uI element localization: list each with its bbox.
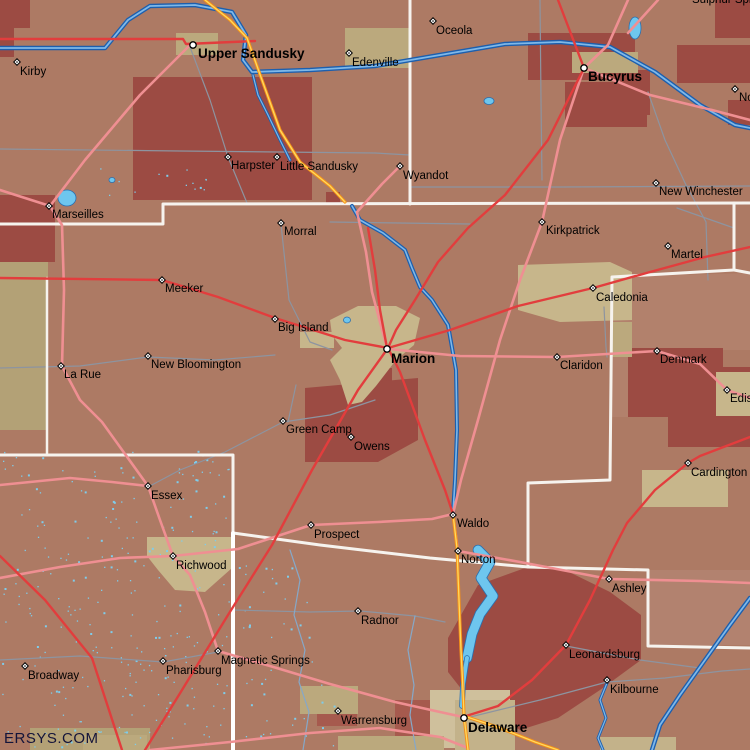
town-label-new-bloomington: New Bloomington — [151, 359, 241, 371]
region-tan-bottom-mid — [338, 736, 444, 750]
town-label-ashley: Ashley — [612, 583, 647, 595]
town-label-kirkpatrick: Kirkpatrick — [546, 225, 600, 237]
town-label-leonardsburg: Leonardsburg — [569, 649, 640, 661]
town-marker-dot-edison — [726, 389, 728, 391]
town-marker-dot-ashley — [608, 578, 610, 580]
town-label-denmark: Denmark — [660, 354, 707, 366]
town-label-richwood: Richwood — [176, 560, 227, 572]
town-marker-dot-radnor — [357, 610, 359, 612]
town-label-bucyrus: Bucyrus — [588, 69, 642, 84]
town-marker-dot-la-rue — [60, 365, 62, 367]
map-canvas[interactable]: KirbyUpper SanduskyEdenvilleOceolaBucyru… — [0, 0, 750, 750]
region-tan-left-strip — [0, 262, 48, 430]
town-label-warrensburg: Warrensburg — [341, 715, 407, 727]
city-marker-marion — [384, 346, 390, 352]
town-label-morral: Morral — [284, 226, 317, 238]
town-marker-dot-waldo — [452, 514, 454, 516]
town-label-kirby: Kirby — [20, 66, 46, 78]
town-marker-dot-kirkpatrick — [541, 221, 543, 223]
town-label-martel: Martel — [671, 249, 703, 261]
town-marker-dot-prospect — [310, 524, 312, 526]
town-label-owens: Owens — [354, 441, 390, 453]
town-label-essex: Essex — [151, 490, 183, 502]
lake-pond-2 — [344, 317, 351, 323]
town-marker-dot-denmark — [656, 350, 658, 352]
map: KirbyUpper SanduskyEdenvilleOceolaBucyru… — [0, 0, 750, 750]
town-marker-dot-oceola — [432, 20, 434, 22]
town-label-pharisburg: Pharisburg — [166, 665, 222, 677]
town-label-cardington: Cardington — [691, 467, 747, 479]
town-label-harpster: Harpster — [231, 160, 275, 172]
town-label-prospect: Prospect — [314, 529, 360, 541]
town-label-little-sandusky: Little Sandusky — [280, 161, 358, 173]
town-label-wyandot: Wyandot — [403, 170, 449, 182]
town-label-upper-sandusky: Upper Sandusky — [198, 46, 305, 61]
town-marker-dot-cardington — [687, 462, 689, 464]
town-label-magnetic-springs: Magnetic Springs — [221, 655, 310, 667]
town-marker-dot-green-camp — [282, 420, 284, 422]
town-marker-dot-big-island — [274, 318, 276, 320]
town-marker-dot-norton — [457, 550, 459, 552]
town-label-marion: Marion — [391, 351, 435, 366]
town-label-oceola: Oceola — [436, 25, 473, 37]
town-marker-dot-owens — [350, 436, 352, 438]
town-marker-dot-caledonia — [592, 287, 594, 289]
town-marker-dot-magnetic-springs — [217, 650, 219, 652]
town-marker-dot-warrensburg — [337, 710, 339, 712]
city-marker-delaware — [461, 715, 467, 721]
town-marker-dot-kirby — [16, 61, 18, 63]
town-marker-dot-broadway — [24, 665, 26, 667]
town-label-norton: Norton — [461, 554, 496, 566]
town-label-green-camp: Green Camp — [286, 424, 352, 436]
town-marker-dot-marseilles — [48, 205, 50, 207]
city-marker-bucyrus — [581, 65, 587, 71]
town-label-delaware: Delaware — [468, 720, 528, 735]
town-label-edenville: Edenville — [352, 57, 399, 69]
town-label-edison: Edison — [730, 393, 750, 405]
watermark: ERSYS.COM — [4, 730, 99, 747]
town-label-sulphur-springs: Sulphur Springs — [692, 0, 750, 6]
town-label-meeker: Meeker — [165, 283, 204, 295]
region-tan-bottomright — [600, 737, 676, 750]
lake-pond-1 — [484, 98, 494, 105]
town-marker-dot-edenville — [348, 52, 350, 54]
region-dark-bucyrus-e — [677, 45, 750, 83]
town-marker-dot-north-robinson — [734, 88, 736, 90]
town-label-claridon: Claridon — [560, 360, 603, 372]
town-label-la-rue: La Rue — [64, 369, 101, 381]
town-marker-dot-richwood — [172, 555, 174, 557]
city-marker-upper-sandusky — [190, 42, 196, 48]
town-marker-dot-martel — [667, 245, 669, 247]
town-label-broadway: Broadway — [28, 670, 79, 682]
town-marker-dot-harpster — [227, 156, 229, 158]
town-marker-dot-new-bloomington — [147, 355, 149, 357]
town-marker-dot-claridon — [556, 356, 558, 358]
town-marker-dot-meeker — [161, 279, 163, 281]
town-label-kilbourne: Kilbourne — [610, 684, 659, 696]
town-label-big-island: Big Island — [278, 322, 329, 334]
town-label-marseilles: Marseilles — [52, 209, 104, 221]
lake-pond-3 — [109, 178, 115, 183]
town-marker-dot-essex — [147, 485, 149, 487]
town-marker-dot-little-sandusky — [276, 156, 278, 158]
town-label-north-robinson: North Robinson — [739, 92, 750, 104]
town-marker-dot-morral — [280, 222, 282, 224]
town-label-new-winchester: New Winchester — [659, 186, 743, 198]
town-label-caledonia: Caledonia — [596, 292, 648, 304]
town-marker-dot-leonardsburg — [565, 644, 567, 646]
town-label-waldo: Waldo — [457, 518, 489, 530]
town-marker-dot-pharisburg — [162, 660, 164, 662]
town-marker-dot-wyandot — [399, 165, 401, 167]
town-marker-dot-kilbourne — [606, 679, 608, 681]
town-label-radnor: Radnor — [361, 615, 399, 627]
town-marker-dot-new-winchester — [655, 182, 657, 184]
